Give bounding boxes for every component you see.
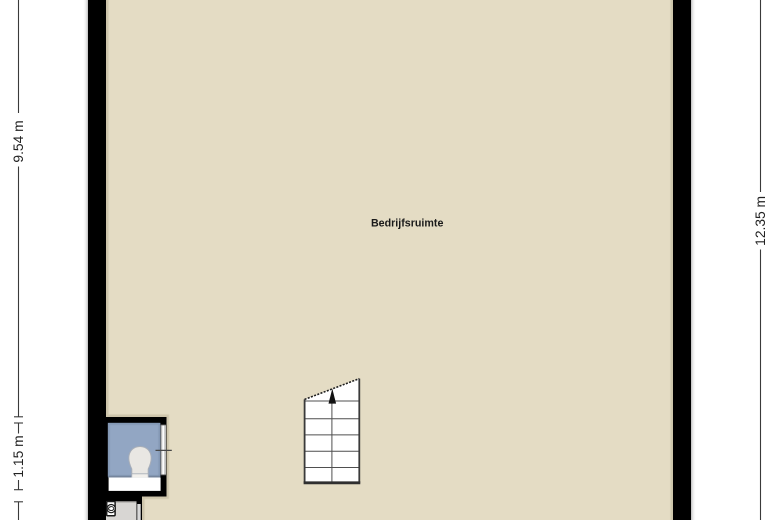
svg-text:9.54 m: 9.54 m <box>11 120 26 162</box>
svg-text:Bedrijfsruimte: Bedrijfsruimte <box>371 218 444 230</box>
svg-text:12.35 m: 12.35 m <box>753 196 768 246</box>
svg-text:1.15 m: 1.15 m <box>11 435 26 477</box>
